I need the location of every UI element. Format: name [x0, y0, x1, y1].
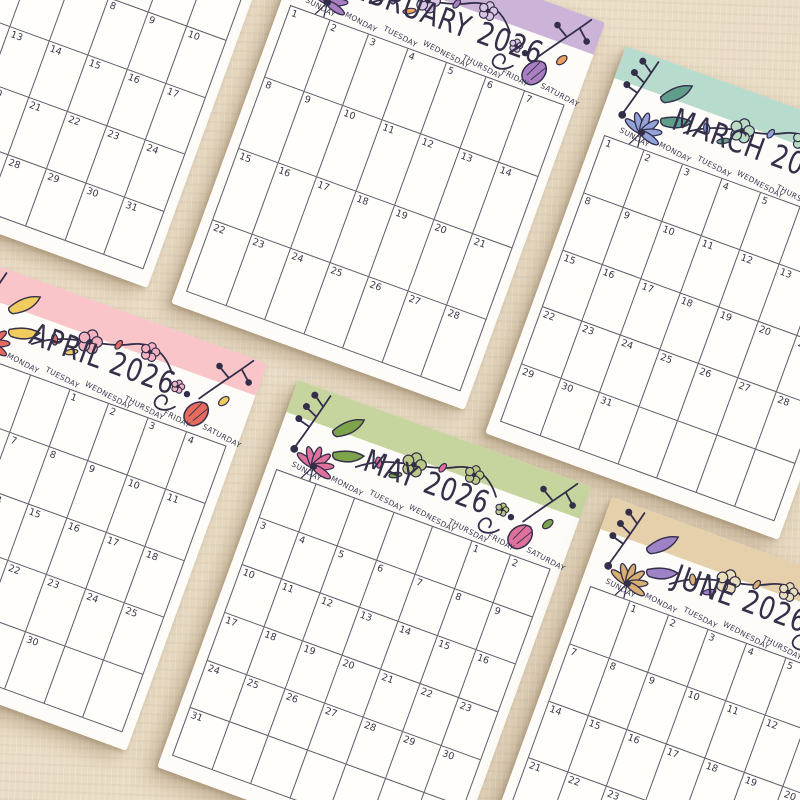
- date-number: 27: [407, 294, 422, 307]
- date-number: 16: [626, 733, 641, 746]
- date-number: 6: [485, 80, 494, 91]
- date-number: 22: [7, 564, 22, 577]
- date-number: 18: [679, 296, 694, 309]
- date-number: 17: [166, 87, 181, 100]
- date-number: 20: [0, 87, 3, 100]
- date-number: 11: [280, 583, 295, 596]
- date-number: 17: [316, 180, 331, 193]
- date-number: 21: [797, 339, 800, 352]
- date-number: 22: [67, 115, 82, 128]
- date-number: 12: [739, 253, 754, 266]
- date-number: 26: [285, 692, 300, 705]
- date-number: 3: [147, 421, 156, 432]
- date-number: 12: [420, 137, 435, 150]
- date-number: 16: [476, 654, 491, 667]
- date-number: 10: [686, 690, 701, 703]
- date-number: 24: [145, 144, 160, 157]
- date-number: 20: [341, 659, 356, 672]
- date-number: 9: [147, 15, 156, 26]
- date-number: 23: [106, 130, 121, 143]
- date-number: 7: [9, 436, 18, 447]
- date-number: 31: [189, 711, 204, 724]
- date-number: 23: [580, 325, 595, 338]
- date-number: 9: [87, 464, 96, 475]
- date-number: 1: [604, 139, 613, 150]
- date-number: 16: [66, 521, 81, 534]
- date-number: 2: [510, 558, 519, 569]
- date-number: 29: [402, 735, 417, 748]
- date-number: 11: [165, 493, 180, 506]
- date-number: 17: [106, 535, 121, 548]
- date-number: 15: [87, 58, 102, 71]
- date-number: 21: [380, 673, 395, 686]
- date-number: 18: [704, 761, 719, 774]
- date-number: 17: [665, 747, 680, 760]
- date-number: 23: [46, 578, 61, 591]
- date-number: 18: [145, 550, 160, 563]
- date-number: 9: [493, 606, 502, 617]
- date-number: 5: [760, 196, 769, 207]
- date-number: 11: [725, 704, 740, 717]
- date-number: 8: [108, 1, 117, 12]
- date-number: 7: [415, 578, 424, 589]
- date-number: 21: [472, 237, 487, 250]
- date-number: 24: [620, 339, 635, 352]
- date-number: 20: [433, 223, 448, 236]
- date-grid: 1 2 3 4 5 6 7: [500, 135, 800, 521]
- date-number: 26: [368, 280, 383, 293]
- date-number: 25: [329, 266, 344, 279]
- date-number: 2: [643, 153, 652, 164]
- date-number: 15: [238, 152, 253, 165]
- date-number: 14: [548, 704, 563, 717]
- date-number: 27: [324, 706, 339, 719]
- date-number: 30: [25, 636, 40, 649]
- date-number: 10: [241, 568, 256, 581]
- date-number: 4: [186, 435, 195, 446]
- date-number: 30: [441, 749, 456, 762]
- date-number: 13: [459, 152, 474, 165]
- date-number: 10: [126, 478, 141, 491]
- date-number: 19: [394, 209, 409, 222]
- date-number: 3: [682, 168, 691, 179]
- date-number: 31: [124, 201, 139, 214]
- date-number: 22: [541, 311, 556, 324]
- date-number: 17: [640, 282, 655, 295]
- date-number: 24: [206, 664, 221, 677]
- date-number: 11: [700, 239, 715, 252]
- date-number: 10: [186, 30, 201, 43]
- date-number: 6: [376, 563, 385, 574]
- date-number: 1: [471, 544, 480, 555]
- date-number: 14: [397, 625, 412, 638]
- date-number: 17: [224, 616, 239, 629]
- date-number: 9: [622, 210, 631, 221]
- date-number: 22: [566, 776, 581, 789]
- date-number: 13: [9, 30, 24, 43]
- date-number: 28: [776, 396, 791, 409]
- date-number: 8: [608, 661, 617, 672]
- date-number: 8: [454, 592, 463, 603]
- date-number: 16: [601, 268, 616, 281]
- date-number: 24: [85, 593, 100, 606]
- date-number: 26: [698, 367, 713, 380]
- date-number: 5: [446, 66, 455, 77]
- date-grid: 1 2 3 4 5 6 7: [186, 5, 565, 391]
- date-number: 3: [258, 521, 267, 532]
- date-number: 19: [302, 644, 317, 657]
- date-number: 18: [355, 195, 370, 208]
- date-number: 3: [707, 633, 716, 644]
- date-number: 10: [661, 225, 676, 238]
- date-number: 15: [436, 639, 451, 652]
- date-number: 31: [599, 396, 614, 409]
- date-number: 4: [746, 647, 755, 658]
- date-number: 13: [778, 267, 793, 280]
- date-number: 28: [446, 309, 461, 322]
- date-number: 8: [264, 81, 273, 92]
- date-number: 14: [498, 166, 513, 179]
- date-number: 1: [69, 393, 78, 404]
- date-number: 20: [758, 324, 773, 337]
- date-number: 14: [0, 493, 3, 506]
- date-number: 30: [560, 382, 575, 395]
- date-number: 8: [48, 450, 57, 461]
- date-number: 19: [718, 310, 733, 323]
- date-number: 27: [737, 382, 752, 395]
- date-number: 11: [381, 123, 396, 136]
- date-number: 1: [629, 604, 638, 615]
- date-number: 25: [246, 678, 261, 691]
- date-number: 12: [764, 718, 779, 731]
- date-number: 13: [358, 611, 373, 624]
- date-number: 4: [297, 535, 306, 546]
- date-number: 15: [562, 253, 577, 266]
- date-number: 9: [647, 676, 656, 687]
- date-number: 1: [290, 9, 299, 20]
- date-number: 25: [659, 353, 674, 366]
- date-number: 16: [127, 72, 142, 85]
- date-number: 23: [251, 238, 266, 251]
- date-number: 29: [46, 173, 61, 186]
- date-number: 10: [342, 109, 357, 122]
- date-number: 14: [48, 44, 63, 57]
- date-number: 7: [524, 94, 533, 105]
- date-number: 29: [521, 368, 536, 381]
- date-number: 4: [407, 52, 416, 63]
- date-number: 7: [569, 647, 578, 658]
- date-number: 22: [212, 223, 227, 236]
- date-number: 25: [124, 607, 139, 620]
- date-number: 18: [263, 630, 278, 643]
- date-number: 21: [28, 101, 43, 114]
- date-number: 28: [7, 158, 22, 171]
- date-number: 2: [108, 407, 117, 418]
- date-number: 19: [744, 775, 759, 788]
- date-number: 21: [527, 762, 542, 775]
- date-number: 5: [337, 549, 346, 560]
- linen-background: JANUARY 2026SUNDAYMONDAYTUESDAYWEDNESDAY…: [0, 0, 800, 800]
- date-number: 30: [85, 187, 100, 200]
- date-number: 4: [721, 182, 730, 193]
- date-number: 2: [668, 619, 677, 630]
- date-number: 23: [458, 701, 473, 714]
- date-number: 24: [290, 252, 305, 265]
- date-number: 28: [363, 720, 378, 733]
- date-number: 8: [583, 196, 592, 207]
- date-number: 15: [587, 719, 602, 732]
- date-number: 20: [783, 790, 798, 800]
- date-number: 16: [277, 166, 292, 179]
- date-number: 3: [368, 38, 377, 49]
- date-number: 22: [419, 687, 434, 700]
- date-number: 2: [329, 23, 338, 34]
- date-number: 15: [27, 507, 42, 520]
- date-number: 23: [606, 790, 621, 800]
- date-number: 5: [785, 661, 794, 672]
- date-number: 9: [303, 95, 312, 106]
- date-number: 12: [319, 597, 334, 610]
